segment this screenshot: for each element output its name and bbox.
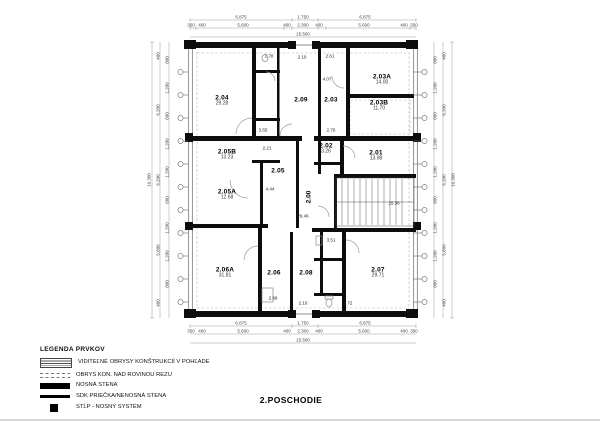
dim-label: 6.200 [442,104,447,115]
room-id: 2.09 [294,96,307,103]
area-annotation: 2.61 [326,54,335,59]
dim-label: 5.600 [156,244,161,255]
dim-label: 5.600 [237,23,248,28]
dim-label: 5.600 [358,23,369,28]
dim-label: 1.200 [433,222,438,233]
legend-item-visible-outlines: VIDITEĽNÉ OBRYSY KONŠTRUKCIÍ V POHĽADE [40,358,210,368]
dim-label: 400 [283,23,291,28]
dim-label: 400 [315,23,323,28]
dim-label: 400 [442,52,447,60]
room-area: 14.00 [373,81,391,87]
dashed-swatch-icon [40,373,70,378]
room-id: 2.03 [324,96,337,103]
dim-label: 5.600 [358,329,369,334]
area-annotation: 2.21 [263,146,272,151]
dim-label: 1.750 [297,321,308,326]
room-2-09-label: 2.09 [294,96,307,103]
dim-label: 350 [187,23,195,28]
room-2-02-label: 2.023.26 [319,142,332,155]
thin-wall-swatch-icon [40,395,70,399]
dim-label: 400 [156,299,161,307]
plan-title: 2.POSCHODIE [236,395,346,405]
room-2-03-label: 2.03 [324,96,337,103]
area-annotation: 4.07 [323,77,332,82]
dim-label: 5.600 [237,329,248,334]
room-area: 29.71 [371,274,384,280]
room-id: 2.08 [299,269,312,276]
area-annotation: 3.55 [259,128,268,133]
legend-item-label: NOSNÁ STENA [76,382,118,389]
room-area: 29.28 [215,102,228,108]
room-area: 3.26 [319,150,332,156]
room-area: 13.23 [218,156,236,162]
floor-plan-canvas: 2.0429.28 2.09 2.03 2.03A14.00 2.03B11.7… [0,0,600,426]
dim-label: 600 [433,196,438,204]
room-2-01-label: 2.0113.98 [369,149,382,162]
legend-item-partition-wall: SDK PRIEČKA/NENOSNÁ STENA [40,393,210,400]
room-area: 11.70 [370,107,388,113]
dim-label: 1.200 [433,138,438,149]
dim-label: 6.875 [359,321,370,326]
dim-label: 6.875 [235,321,246,326]
dim-total-label: 19.300 [451,173,456,187]
room-2-03a-label: 2.03A14.00 [373,73,391,86]
area-annotation: 2.10 [299,301,308,306]
room-2-06a-label: 2.06A31.81 [216,266,234,279]
room-area: 13.98 [369,157,382,163]
dim-label: 800 [433,280,438,288]
room-area: 12.68 [218,196,236,202]
solid-wall-swatch-icon [40,383,70,389]
legend-item-label: STĹP - NOSNÝ SYSTÉM [76,404,142,411]
legend-title: LEGENDA PRVKOV [40,346,210,353]
dim-label: 400 [283,329,291,334]
dim-label: 1.200 [433,82,438,93]
dim-label: 2.300 [297,329,308,334]
room-2-07-label: 2.0729.71 [371,266,384,279]
corridor-area: 29.46 [297,214,308,219]
area-annotation: 2.99 [269,296,278,301]
dim-total-label: 19.300 [147,173,152,187]
dim-label: 6.200 [156,174,161,185]
dim-label: 6.875 [359,15,370,20]
dim-label: 350 [410,329,418,334]
dim-label: 400 [156,52,161,60]
room-2-06-label: 2.06 [267,269,280,276]
dim-label: 800 [433,56,438,64]
dim-total-label: 15.500 [296,338,310,343]
room-id: 2.05 [271,167,284,174]
dim-label: 5.600 [442,244,447,255]
dim-label: 400 [400,329,408,334]
dim-label: 600 [165,112,170,120]
room-2-03b-label: 2.03B11.70 [370,99,388,112]
dim-label: 350 [410,23,418,28]
legend-item-dashed-outline: OBRYS KON. NAD ROVINOU REZU [40,372,210,379]
room-2-08-label: 2.08 [299,269,312,276]
legend-item-label: SDK PRIEČKA/NENOSNÁ STENA [76,393,166,400]
dim-label: 1.200 [433,250,438,261]
dimension-lines [150,18,454,343]
dim-label: 1.200 [433,166,438,177]
dim-label: 400 [198,23,206,28]
dim-label: 400 [198,329,206,334]
dim-label: 2.300 [297,23,308,28]
dim-label: 1.200 [165,138,170,149]
room-2-05-label: 2.05 [271,167,284,174]
room-2-05-area: 4.44 [266,187,275,192]
outline-swatch-icon [40,358,72,368]
corridor-id-label: 2.00 [306,191,313,204]
room-2-04-label: 2.0429.28 [215,94,228,107]
dim-label: 1.200 [165,166,170,177]
dim-total-label: 15.500 [296,32,310,37]
dim-label: 600 [165,196,170,204]
dim-label: 6.875 [235,15,246,20]
legend-item-bearing-wall: NOSNÁ STENA [40,382,210,389]
room-id: 2.06 [267,269,280,276]
dim-label: 350 [187,329,195,334]
area-annotation: 1.78 [265,54,274,59]
dim-label: 6.200 [442,174,447,185]
legend-item-label: VIDITEĽNÉ OBRYSY KONŠTRUKCIÍ V POHĽADE [78,359,210,366]
dim-label: 600 [433,112,438,120]
stairs-area: 15.36 [388,201,399,206]
dim-label: 1.200 [165,250,170,261]
dim-label: 1.200 [165,82,170,93]
room-2-05b-label: 2.05B13.23 [218,148,236,161]
dim-label: 1.750 [297,15,308,20]
dim-label: 800 [165,280,170,288]
area-annotation: 3.51 [327,238,336,243]
area-annotation: 2.76 [327,128,336,133]
legend: LEGENDA PRVKOV VIDITEĽNÉ OBRYSY KONŠTRUK… [40,346,210,415]
legend-item-label: OBRYS KON. NAD ROVINOU REZU [76,372,172,379]
column-swatch-icon [50,404,58,412]
dim-label: 6.200 [156,104,161,115]
area-annotation: 1.72 [344,301,353,306]
dim-label: 400 [442,299,447,307]
page-edge-line [0,419,600,421]
dim-label: 1.200 [165,222,170,233]
dim-label: 800 [165,56,170,64]
dim-label: 400 [400,23,408,28]
dim-label: 400 [315,329,323,334]
area-annotation: 2.10 [298,55,307,60]
legend-item-column: STĹP - NOSNÝ SYSTÉM [40,404,210,412]
room-area: 31.81 [216,274,234,280]
staircase [336,178,414,226]
room-2-05a-label: 2.05A12.68 [218,188,236,201]
